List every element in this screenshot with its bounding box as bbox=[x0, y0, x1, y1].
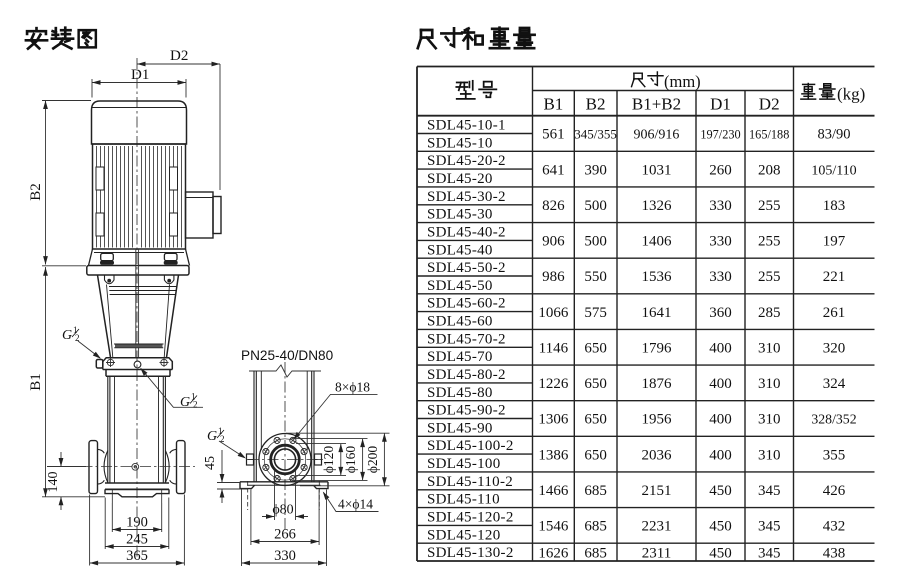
svg-text:1406: 1406 bbox=[642, 234, 673, 250]
svg-text:365: 365 bbox=[126, 548, 148, 564]
svg-text:4×ϕ14: 4×ϕ14 bbox=[338, 497, 373, 512]
svg-text:320: 320 bbox=[823, 341, 846, 357]
svg-text:SDL45-70: SDL45-70 bbox=[427, 349, 493, 365]
svg-text:SDL45-130-2: SDL45-130-2 bbox=[427, 545, 514, 561]
svg-text:550: 550 bbox=[584, 269, 607, 285]
svg-text:2231: 2231 bbox=[642, 519, 672, 535]
svg-text:SDL45-100: SDL45-100 bbox=[427, 456, 501, 472]
svg-text:SDL45-80: SDL45-80 bbox=[427, 385, 493, 401]
svg-text:360: 360 bbox=[709, 305, 732, 321]
svg-text:D1: D1 bbox=[710, 94, 731, 113]
svg-text:45: 45 bbox=[203, 456, 218, 470]
svg-text:685: 685 bbox=[584, 483, 607, 499]
svg-text:438: 438 bbox=[823, 545, 846, 561]
svg-text:PN25-40/DN80: PN25-40/DN80 bbox=[241, 348, 334, 363]
svg-text:906: 906 bbox=[542, 234, 565, 250]
svg-text:D1: D1 bbox=[131, 67, 149, 83]
svg-text:324: 324 bbox=[823, 376, 846, 392]
svg-text:255: 255 bbox=[758, 198, 781, 214]
svg-text:SDL45-90-2: SDL45-90-2 bbox=[427, 403, 506, 419]
svg-text:SDL45-40-2: SDL45-40-2 bbox=[427, 225, 506, 241]
svg-text:650: 650 bbox=[584, 341, 607, 357]
svg-text:SDL45-100-2: SDL45-100-2 bbox=[427, 438, 514, 454]
svg-text:245: 245 bbox=[126, 532, 148, 548]
svg-text:SDL45-110: SDL45-110 bbox=[427, 492, 500, 508]
svg-text:208: 208 bbox=[758, 162, 781, 178]
svg-text:165/188: 165/188 bbox=[749, 128, 789, 142]
svg-text:ϕ120: ϕ120 bbox=[321, 446, 336, 474]
svg-text:260: 260 bbox=[709, 162, 732, 178]
svg-text:450: 450 bbox=[709, 545, 732, 561]
svg-text:650: 650 bbox=[584, 376, 607, 392]
svg-text:(mm): (mm) bbox=[664, 72, 701, 91]
svg-text:1326: 1326 bbox=[642, 198, 673, 214]
svg-text:SDL45-120: SDL45-120 bbox=[427, 527, 501, 543]
svg-text:1226: 1226 bbox=[538, 376, 569, 392]
svg-text:261: 261 bbox=[823, 305, 846, 321]
svg-text:SDL45-20: SDL45-20 bbox=[427, 171, 493, 187]
svg-text:ϕ160: ϕ160 bbox=[343, 446, 358, 474]
svg-text:1031: 1031 bbox=[642, 162, 672, 178]
svg-text:330: 330 bbox=[709, 234, 732, 250]
svg-text:1466: 1466 bbox=[538, 483, 569, 499]
svg-text:190: 190 bbox=[126, 515, 148, 531]
svg-text:1546: 1546 bbox=[538, 519, 569, 535]
svg-text:D2: D2 bbox=[759, 94, 780, 113]
svg-text:575: 575 bbox=[584, 305, 607, 321]
svg-text:2151: 2151 bbox=[642, 483, 672, 499]
svg-text:2: 2 bbox=[75, 333, 80, 343]
svg-text:G: G bbox=[207, 429, 217, 444]
svg-text:(kg): (kg) bbox=[837, 85, 865, 104]
svg-text:650: 650 bbox=[584, 447, 607, 463]
svg-text:B2: B2 bbox=[586, 94, 606, 113]
svg-text:SDL45-50: SDL45-50 bbox=[427, 278, 493, 294]
svg-text:1956: 1956 bbox=[642, 412, 673, 428]
svg-text:SDL45-80-2: SDL45-80-2 bbox=[427, 367, 506, 383]
svg-text:500: 500 bbox=[584, 198, 607, 214]
svg-text:SDL45-30-2: SDL45-30-2 bbox=[427, 189, 506, 205]
svg-text:400: 400 bbox=[709, 341, 732, 357]
svg-text:328/352: 328/352 bbox=[811, 412, 856, 427]
svg-text:SDL45-110-2: SDL45-110-2 bbox=[427, 474, 513, 490]
svg-text:345: 345 bbox=[758, 545, 781, 561]
svg-text:B2: B2 bbox=[28, 183, 44, 201]
svg-text:255: 255 bbox=[758, 234, 781, 250]
svg-text:330: 330 bbox=[709, 198, 732, 214]
svg-text:221: 221 bbox=[823, 269, 846, 285]
svg-text:2311: 2311 bbox=[642, 545, 671, 561]
svg-text:986: 986 bbox=[542, 269, 565, 285]
svg-text:650: 650 bbox=[584, 412, 607, 428]
svg-text:1876: 1876 bbox=[642, 376, 673, 392]
svg-text:8×ϕ18: 8×ϕ18 bbox=[335, 380, 370, 395]
svg-text:2: 2 bbox=[193, 400, 198, 410]
svg-text:G: G bbox=[180, 395, 190, 410]
svg-text:105/110: 105/110 bbox=[811, 163, 856, 178]
svg-text:345: 345 bbox=[758, 483, 781, 499]
svg-text:450: 450 bbox=[709, 483, 732, 499]
svg-text:345: 345 bbox=[758, 519, 781, 535]
svg-text:355: 355 bbox=[823, 447, 846, 463]
svg-text:1641: 1641 bbox=[642, 305, 672, 321]
svg-text:390: 390 bbox=[584, 162, 607, 178]
svg-text:B1+B2: B1+B2 bbox=[632, 94, 681, 113]
svg-text:400: 400 bbox=[709, 447, 732, 463]
svg-text:2: 2 bbox=[220, 434, 225, 444]
svg-text:400: 400 bbox=[709, 376, 732, 392]
svg-text:345/355: 345/355 bbox=[574, 127, 617, 142]
svg-text:426: 426 bbox=[823, 483, 846, 499]
svg-text:266: 266 bbox=[274, 527, 296, 543]
svg-text:310: 310 bbox=[758, 447, 781, 463]
svg-text:SDL45-10-1: SDL45-10-1 bbox=[427, 118, 506, 134]
svg-text:310: 310 bbox=[758, 412, 781, 428]
svg-text:SDL45-90: SDL45-90 bbox=[427, 420, 493, 436]
svg-text:310: 310 bbox=[758, 376, 781, 392]
svg-text:B1: B1 bbox=[543, 94, 563, 113]
svg-text:826: 826 bbox=[542, 198, 565, 214]
svg-text:330: 330 bbox=[709, 269, 732, 285]
svg-text:330: 330 bbox=[274, 548, 296, 564]
svg-text:2036: 2036 bbox=[642, 447, 673, 463]
svg-text:1626: 1626 bbox=[538, 545, 569, 561]
svg-text:SDL45-50-2: SDL45-50-2 bbox=[427, 260, 506, 276]
svg-text:1306: 1306 bbox=[538, 412, 569, 428]
svg-text:ϕ80: ϕ80 bbox=[272, 503, 293, 518]
svg-text:83/90: 83/90 bbox=[817, 127, 850, 143]
svg-text:B1: B1 bbox=[28, 373, 44, 391]
svg-text:561: 561 bbox=[542, 127, 565, 143]
svg-text:SDL45-70-2: SDL45-70-2 bbox=[427, 331, 506, 347]
svg-text:641: 641 bbox=[542, 162, 565, 178]
svg-text:450: 450 bbox=[709, 519, 732, 535]
svg-text:183: 183 bbox=[823, 198, 846, 214]
svg-text:SDL45-60: SDL45-60 bbox=[427, 314, 493, 330]
svg-text:685: 685 bbox=[584, 545, 607, 561]
svg-text:310: 310 bbox=[758, 341, 781, 357]
svg-text:SDL45-120-2: SDL45-120-2 bbox=[427, 510, 514, 526]
svg-text:D2: D2 bbox=[170, 48, 188, 64]
svg-text:1386: 1386 bbox=[538, 447, 569, 463]
svg-text:140: 140 bbox=[46, 472, 61, 493]
svg-text:SDL45-40: SDL45-40 bbox=[427, 242, 493, 258]
svg-text:SDL45-20-2: SDL45-20-2 bbox=[427, 153, 506, 169]
svg-text:500: 500 bbox=[584, 234, 607, 250]
svg-text:G: G bbox=[62, 328, 72, 343]
svg-text:197: 197 bbox=[823, 234, 846, 250]
svg-text:400: 400 bbox=[709, 412, 732, 428]
svg-text:1796: 1796 bbox=[642, 341, 673, 357]
svg-text:685: 685 bbox=[584, 519, 607, 535]
svg-text:SDL45-10: SDL45-10 bbox=[427, 135, 493, 151]
svg-text:1146: 1146 bbox=[539, 341, 569, 357]
svg-text:906/916: 906/916 bbox=[634, 128, 680, 143]
svg-text:285: 285 bbox=[758, 305, 781, 321]
svg-text:SDL45-30: SDL45-30 bbox=[427, 207, 493, 223]
svg-text:255: 255 bbox=[758, 269, 781, 285]
svg-text:432: 432 bbox=[823, 519, 846, 535]
svg-text:ϕ200: ϕ200 bbox=[365, 446, 380, 474]
svg-text:1066: 1066 bbox=[538, 305, 569, 321]
svg-text:SDL45-60-2: SDL45-60-2 bbox=[427, 296, 506, 312]
svg-text:197/230: 197/230 bbox=[700, 128, 740, 142]
svg-text:1536: 1536 bbox=[642, 269, 673, 285]
